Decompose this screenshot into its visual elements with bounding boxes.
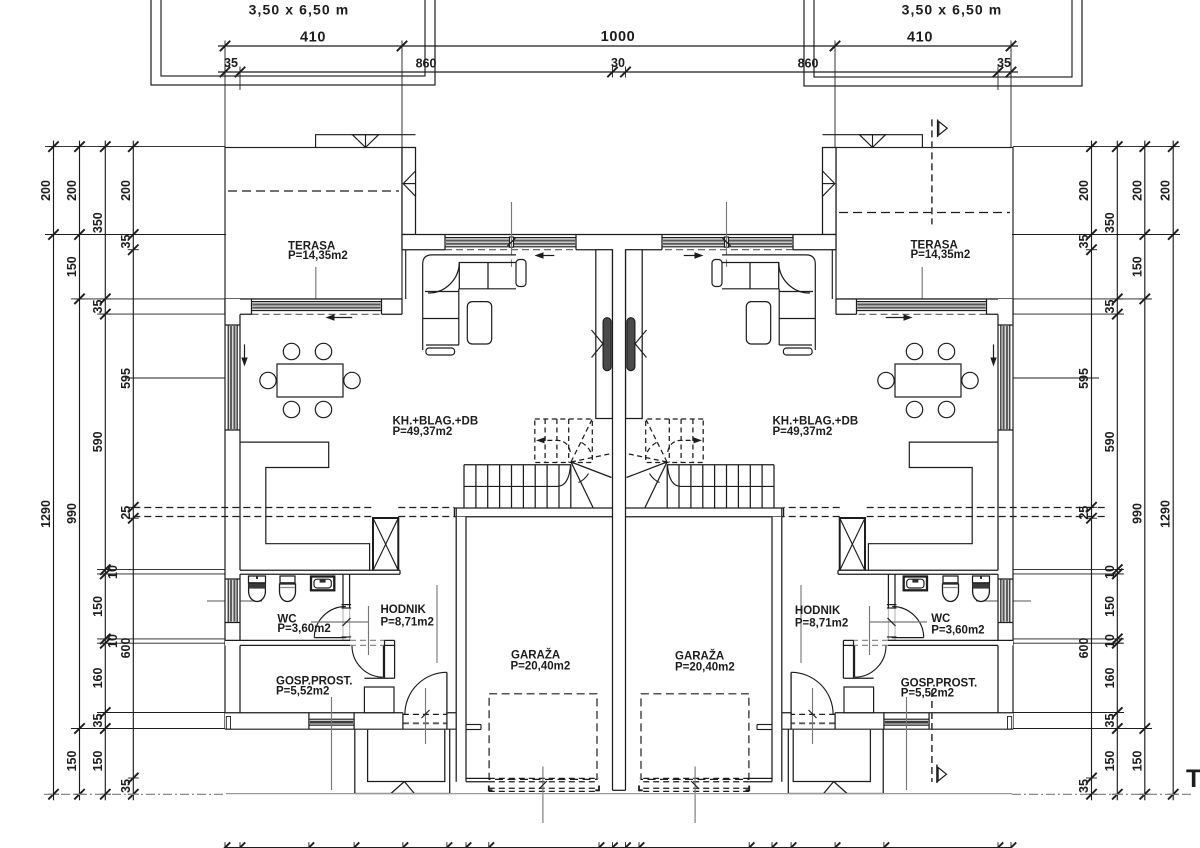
svg-text:200: 200 xyxy=(1130,180,1144,201)
svg-text:200: 200 xyxy=(39,180,53,201)
svg-text:600: 600 xyxy=(1077,638,1091,659)
svg-text:200: 200 xyxy=(1159,180,1173,201)
svg-text:600: 600 xyxy=(119,638,133,659)
svg-text:T: T xyxy=(1186,765,1200,793)
svg-text:35: 35 xyxy=(91,300,105,314)
svg-text:P=20,40m2: P=20,40m2 xyxy=(511,661,571,673)
svg-text:35: 35 xyxy=(1103,714,1117,728)
svg-text:150: 150 xyxy=(65,256,79,277)
svg-text:10: 10 xyxy=(106,634,120,648)
svg-text:590: 590 xyxy=(91,431,105,452)
svg-text:150: 150 xyxy=(65,751,79,772)
svg-text:P=8,71m2: P=8,71m2 xyxy=(381,616,434,628)
svg-text:30: 30 xyxy=(611,56,625,70)
svg-text:160: 160 xyxy=(1103,668,1117,689)
svg-text:3,50 x 6,50 m: 3,50 x 6,50 m xyxy=(902,2,1003,18)
svg-text:10: 10 xyxy=(1103,634,1117,648)
svg-text:P=14,35m2: P=14,35m2 xyxy=(911,249,971,261)
svg-text:595: 595 xyxy=(119,368,133,389)
svg-text:35: 35 xyxy=(119,235,133,249)
svg-text:P=3,60m2: P=3,60m2 xyxy=(277,623,330,635)
svg-text:3,50 x 6,50 m: 3,50 x 6,50 m xyxy=(249,2,350,18)
svg-text:HODNIK: HODNIK xyxy=(381,604,427,616)
svg-text:35: 35 xyxy=(119,779,133,793)
svg-text:150: 150 xyxy=(1130,751,1144,772)
svg-text:590: 590 xyxy=(1103,431,1117,452)
svg-text:1290: 1290 xyxy=(1159,500,1173,528)
svg-text:P=5,52m2: P=5,52m2 xyxy=(901,688,954,700)
svg-text:35: 35 xyxy=(224,56,238,70)
svg-text:150: 150 xyxy=(91,751,105,772)
svg-text:150: 150 xyxy=(1103,751,1117,772)
svg-text:25: 25 xyxy=(119,506,133,520)
svg-text:35: 35 xyxy=(1077,779,1091,793)
svg-text:150: 150 xyxy=(1103,596,1117,617)
svg-text:860: 860 xyxy=(798,57,819,71)
svg-text:P=49,37m2: P=49,37m2 xyxy=(393,426,453,438)
svg-text:200: 200 xyxy=(119,180,133,201)
svg-text:990: 990 xyxy=(1130,503,1144,524)
svg-text:200: 200 xyxy=(1077,180,1091,201)
svg-text:P=14,35m2: P=14,35m2 xyxy=(288,250,348,262)
svg-text:200: 200 xyxy=(65,180,79,201)
svg-text:860: 860 xyxy=(416,57,437,71)
svg-text:1290: 1290 xyxy=(39,500,53,528)
svg-text:410: 410 xyxy=(907,30,933,46)
svg-text:595: 595 xyxy=(1077,368,1091,389)
svg-text:410: 410 xyxy=(300,30,326,46)
svg-text:35: 35 xyxy=(91,714,105,728)
svg-text:P=49,37m2: P=49,37m2 xyxy=(773,426,833,438)
svg-text:350: 350 xyxy=(1103,212,1117,233)
svg-text:10: 10 xyxy=(1103,565,1117,579)
svg-text:150: 150 xyxy=(1130,256,1144,277)
svg-text:350: 350 xyxy=(91,212,105,233)
svg-text:P=5,52m2: P=5,52m2 xyxy=(276,686,329,698)
svg-text:P=20,40m2: P=20,40m2 xyxy=(675,662,735,674)
svg-text:990: 990 xyxy=(65,503,79,524)
svg-text:35: 35 xyxy=(997,56,1011,70)
svg-text:150: 150 xyxy=(91,596,105,617)
svg-text:WC: WC xyxy=(931,613,950,625)
svg-text:1000: 1000 xyxy=(601,29,636,45)
svg-text:35: 35 xyxy=(1103,300,1117,314)
svg-text:HODNIK: HODNIK xyxy=(795,605,841,617)
svg-text:160: 160 xyxy=(91,668,105,689)
svg-text:35: 35 xyxy=(1077,235,1091,249)
svg-text:10: 10 xyxy=(106,565,120,579)
svg-text:P=3,60m2: P=3,60m2 xyxy=(931,625,984,637)
svg-text:P=8,71m2: P=8,71m2 xyxy=(795,617,848,629)
